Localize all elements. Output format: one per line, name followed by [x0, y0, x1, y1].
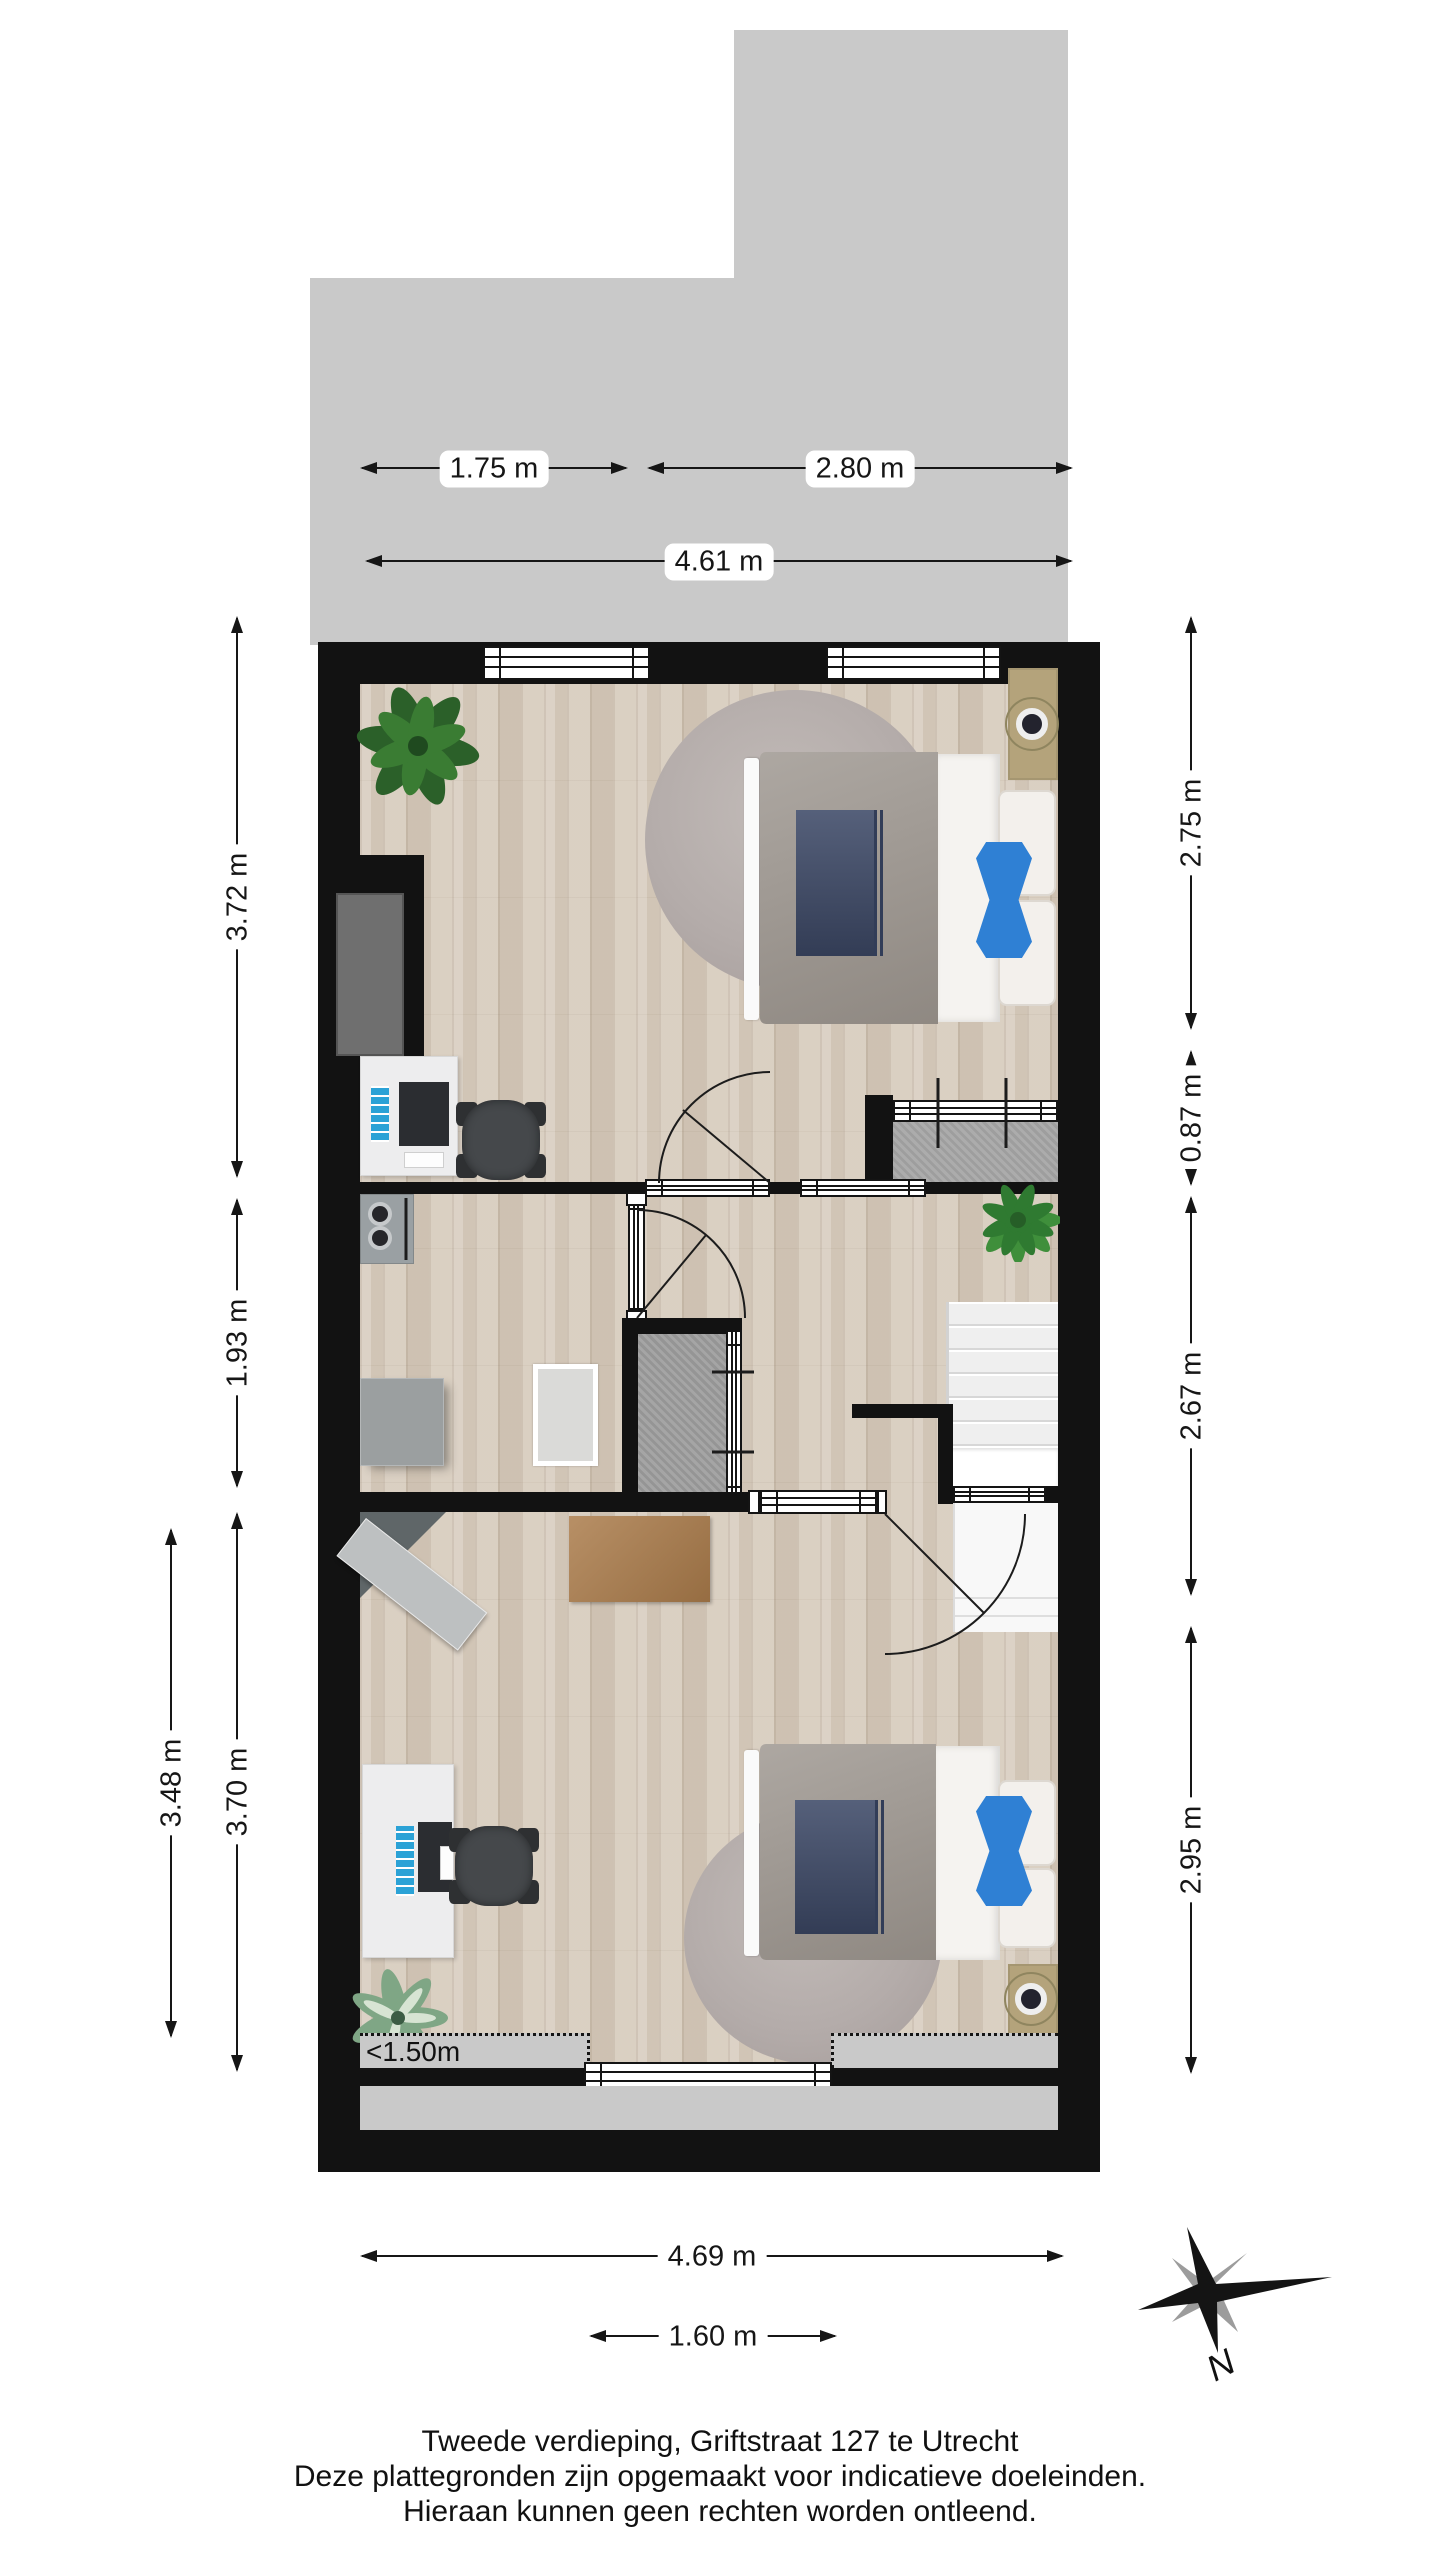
- footer-address: Tweede verdieping, Griftstraat 127 te Ut…: [0, 2424, 1440, 2459]
- dim-bottom-2: 1.60 m: [591, 2335, 835, 2337]
- dim-label: 2.80 m: [806, 451, 915, 488]
- dim-label: 2.95 m: [1176, 1798, 1209, 1903]
- dim-left-3: 3.70 m: [236, 1514, 238, 2070]
- dim-label: 3.48 m: [156, 1731, 189, 1836]
- dim-label: 2.75 m: [1176, 771, 1209, 876]
- dim-label: 3.70 m: [222, 1740, 255, 1845]
- dim-right-3: 2.67 m: [1190, 1198, 1192, 1594]
- dim-label: 1.93 m: [222, 1291, 255, 1396]
- door-leaf-bottom-bedroom: [885, 1514, 984, 1613]
- compass-rose-icon: N: [1100, 2190, 1380, 2410]
- dim-label: 1.60 m: [659, 2319, 768, 2356]
- dim-label: 1.75 m: [440, 451, 549, 488]
- footer: Tweede verdieping, Griftstraat 127 te Ut…: [0, 2424, 1440, 2529]
- door-swing-overlay: [0, 0, 1440, 2560]
- footer-disclaimer-1: Deze plattegronden zijn opgemaakt voor i…: [0, 2459, 1440, 2494]
- dim-right-1: 2.75 m: [1190, 618, 1192, 1028]
- dim-left-1: 3.72 m: [236, 618, 238, 1176]
- dim-label: 0.87 m: [1176, 1066, 1209, 1171]
- compass-north-label: N: [1200, 2340, 1243, 2389]
- dim-label: 2.67 m: [1176, 1344, 1209, 1449]
- door-leaf-hall: [637, 1235, 706, 1318]
- dim-bottom-1: 4.69 m: [362, 2255, 1062, 2257]
- footer-disclaimer-2: Hieraan kunnen geen rechten worden ontle…: [0, 2494, 1440, 2529]
- dim-label: 4.69 m: [658, 2239, 767, 2276]
- dim-right-4: 2.95 m: [1190, 1628, 1192, 2072]
- dim-label: 4.61 m: [665, 544, 774, 581]
- door-arc-hall: [637, 1210, 745, 1318]
- dim-left-2: 1.93 m: [236, 1200, 238, 1486]
- compass: N: [1100, 2190, 1380, 2410]
- door-arc-top-bedroom: [659, 1072, 770, 1183]
- dim-top-2: 2.80 m: [649, 467, 1071, 469]
- dim-top-3: 4.61 m: [367, 560, 1071, 562]
- compass-black-star: [1138, 2227, 1332, 2353]
- dim-top-1: 1.75 m: [362, 467, 626, 469]
- dim-left-4: 3.48 m: [170, 1530, 172, 2036]
- door-leaf-top-bedroom: [683, 1110, 770, 1183]
- dim-right-2: 0.87 m: [1190, 1052, 1192, 1184]
- floorplan-page: <1.50m 1.75 m 2.80 m 4.61 m 4.69 m 1.60 …: [0, 0, 1440, 2560]
- dim-label: 3.72 m: [222, 845, 255, 950]
